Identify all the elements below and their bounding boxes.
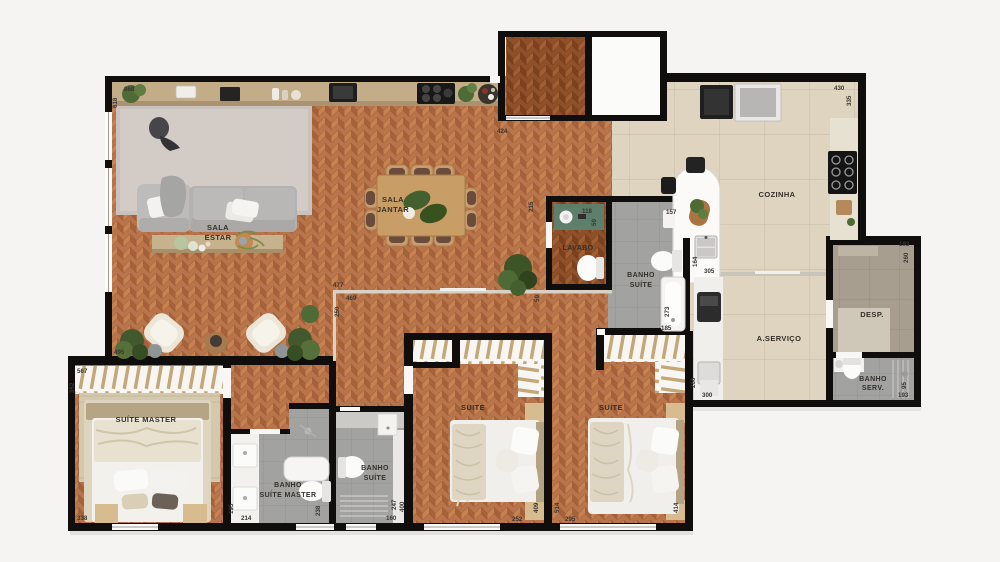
svg-text:COZINHA: COZINHA	[759, 190, 796, 199]
svg-text:338: 338	[77, 515, 88, 522]
svg-text:A.SERVIÇO: A.SERVIÇO	[757, 334, 802, 343]
svg-text:567: 567	[77, 368, 88, 375]
svg-text:50: 50	[591, 219, 598, 226]
svg-text:424: 424	[497, 128, 508, 135]
svg-text:252: 252	[512, 516, 523, 523]
svg-text:400: 400	[399, 501, 406, 512]
svg-text:868: 868	[124, 86, 135, 93]
svg-text:164: 164	[692, 256, 699, 267]
svg-text:BANHO: BANHO	[627, 272, 655, 279]
svg-text:273: 273	[664, 306, 671, 317]
svg-text:157: 157	[666, 209, 677, 216]
svg-text:260: 260	[903, 252, 910, 263]
svg-text:LAVABO: LAVABO	[563, 245, 594, 252]
svg-text:495: 495	[114, 349, 125, 356]
svg-text:SUÍTE: SUÍTE	[630, 280, 653, 289]
svg-text:SALA: SALA	[207, 223, 229, 232]
svg-text:185: 185	[661, 325, 672, 332]
svg-text:414: 414	[673, 502, 680, 513]
svg-text:BANHO: BANHO	[361, 465, 389, 472]
svg-text:409: 409	[533, 502, 540, 513]
svg-text:50: 50	[534, 295, 541, 302]
svg-text:247: 247	[391, 499, 398, 510]
svg-text:335: 335	[846, 95, 853, 106]
svg-text:DESP.: DESP.	[860, 310, 884, 319]
svg-text:SUÍTE MASTER: SUÍTE MASTER	[116, 415, 177, 424]
svg-text:514: 514	[554, 502, 561, 513]
svg-text:215: 215	[528, 201, 535, 212]
svg-text:95: 95	[901, 382, 908, 389]
svg-text:305: 305	[704, 268, 715, 275]
svg-text:295: 295	[565, 516, 576, 523]
svg-text:469: 469	[346, 295, 357, 302]
svg-text:SERV.: SERV.	[862, 385, 884, 392]
svg-text:160: 160	[386, 515, 397, 522]
svg-text:SUITE: SUITE	[599, 403, 623, 412]
svg-text:214: 214	[241, 515, 252, 522]
svg-text:430: 430	[834, 85, 845, 92]
svg-text:238: 238	[315, 505, 322, 516]
svg-text:SUITE: SUITE	[461, 403, 485, 412]
svg-text:ESTAR: ESTAR	[205, 233, 232, 242]
svg-text:250: 250	[334, 306, 341, 317]
svg-text:618: 618	[112, 97, 119, 108]
svg-text:193: 193	[899, 241, 910, 248]
svg-text:BANHO: BANHO	[859, 376, 887, 383]
svg-text:SALA: SALA	[382, 195, 404, 204]
svg-text:266: 266	[690, 377, 697, 388]
svg-text:352: 352	[69, 382, 76, 393]
svg-text:118: 118	[582, 208, 593, 215]
svg-text:195: 195	[228, 503, 235, 514]
svg-text:SUÍTE MASTER: SUÍTE MASTER	[260, 490, 317, 499]
svg-text:SUÍTE: SUÍTE	[364, 473, 387, 482]
svg-text:300: 300	[702, 392, 713, 399]
svg-text:193: 193	[898, 392, 909, 399]
svg-text:JANTAR: JANTAR	[377, 205, 409, 214]
svg-text:BANHO: BANHO	[274, 482, 302, 489]
svg-text:477: 477	[333, 282, 344, 289]
